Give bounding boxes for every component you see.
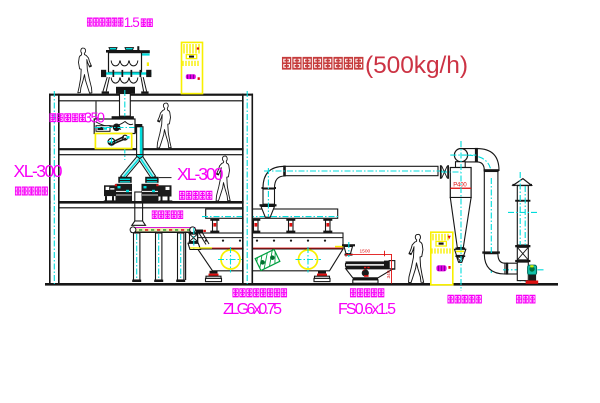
- svg-text:XL-300: XL-300: [14, 161, 63, 181]
- svg-text:1500: 1500: [360, 249, 371, 255]
- svg-text:1.5: 1.5: [124, 15, 140, 30]
- svg-text:350: 350: [84, 111, 105, 127]
- svg-text:XL-300: XL-300: [177, 164, 224, 184]
- svg-text:340: 340: [386, 270, 392, 278]
- svg-text:ZLG6x0.75: ZLG6x0.75: [223, 301, 282, 318]
- svg-text:FS0.6x1.5: FS0.6x1.5: [338, 301, 396, 318]
- svg-text:(500kg/h): (500kg/h): [365, 52, 468, 79]
